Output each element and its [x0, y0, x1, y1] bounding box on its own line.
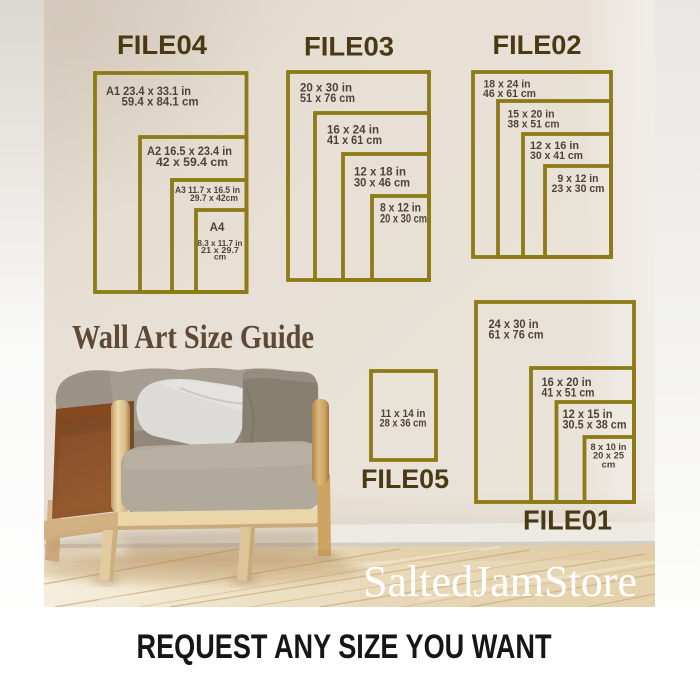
svg-text:A4: A4: [210, 222, 225, 234]
svg-text:46 x 61 cm: 46 x 61 cm: [483, 88, 536, 100]
svg-text:42 x 59.4 cm: 42 x 59.4 cm: [156, 155, 228, 169]
svg-text:20 x 30 cm: 20 x 30 cm: [380, 212, 427, 226]
svg-text:FILE04: FILE04: [117, 30, 207, 60]
svg-text:29.7 x 42cm: 29.7 x 42cm: [190, 193, 238, 204]
svg-text:30 x 41 cm: 30 x 41 cm: [530, 150, 583, 162]
svg-text:41 x 61 cm: 41 x 61 cm: [327, 133, 382, 147]
svg-text:FILE03: FILE03: [304, 32, 394, 62]
svg-text:Wall Art Size Guide: Wall Art Size Guide: [72, 319, 314, 356]
svg-text:SaltedJamStore: SaltedJamStore: [363, 557, 637, 606]
svg-text:REQUEST ANY SIZE YOU WANT: REQUEST ANY SIZE YOU WANT: [137, 628, 552, 666]
svg-text:cm: cm: [602, 460, 616, 471]
svg-text:FILE05: FILE05: [361, 464, 449, 494]
svg-text:61 x 76 cm: 61 x 76 cm: [489, 328, 544, 342]
svg-text:38 x 51 cm: 38 x 51 cm: [508, 119, 560, 131]
svg-text:59.4 x 84.1 cm: 59.4 x 84.1 cm: [122, 95, 199, 109]
svg-text:FILE01: FILE01: [523, 505, 612, 536]
svg-text:30.5 x 38 cm: 30.5 x 38 cm: [563, 418, 627, 432]
svg-text:28 x 36 cm: 28 x 36 cm: [380, 418, 427, 430]
svg-text:cm: cm: [214, 252, 227, 262]
svg-text:30 x 46 cm: 30 x 46 cm: [354, 176, 410, 190]
svg-text:FILE02: FILE02: [493, 30, 582, 60]
svg-text:41 x 51 cm: 41 x 51 cm: [542, 386, 595, 400]
svg-text:23 x 30 cm: 23 x 30 cm: [552, 183, 605, 195]
svg-text:51 x 76 cm: 51 x 76 cm: [300, 91, 355, 105]
